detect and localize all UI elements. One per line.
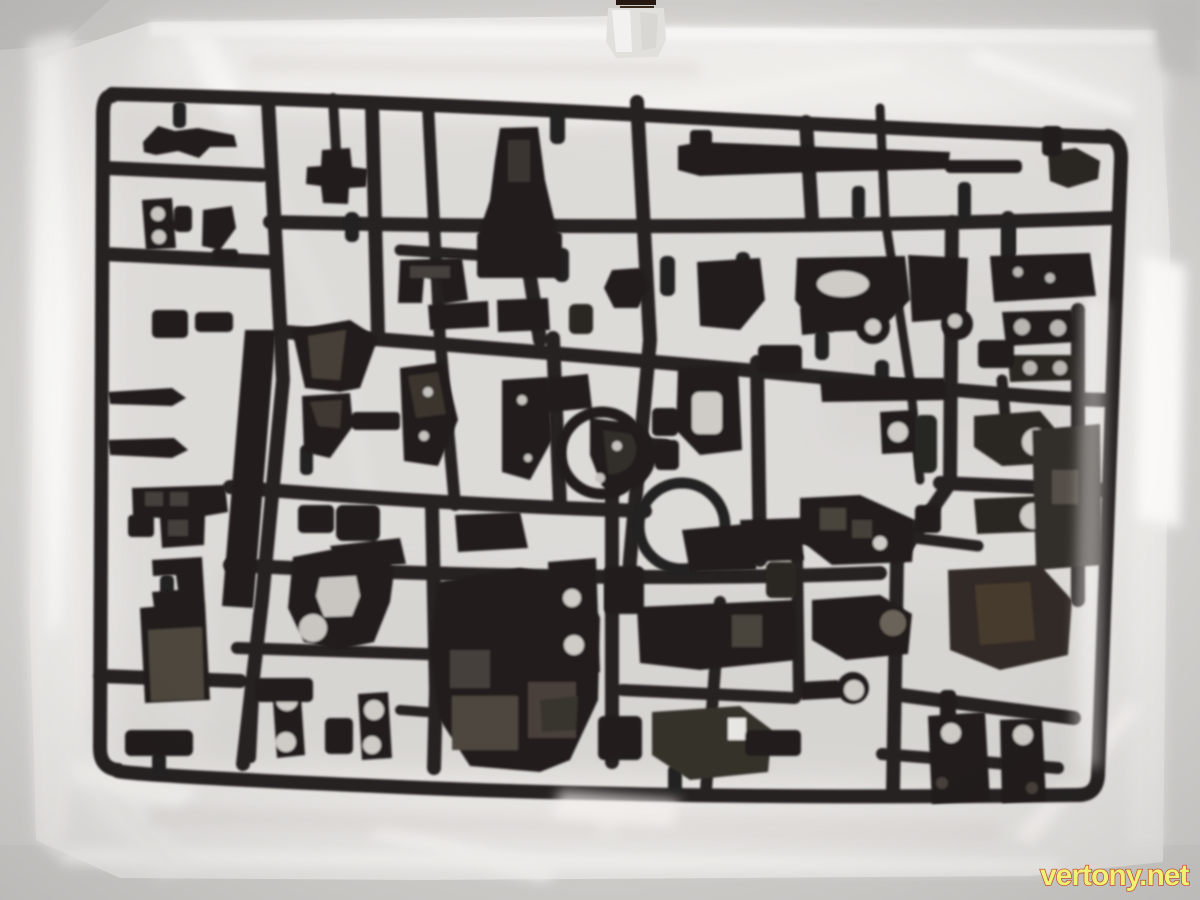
svg-text:vertony.net: vertony.net xyxy=(1040,859,1189,892)
